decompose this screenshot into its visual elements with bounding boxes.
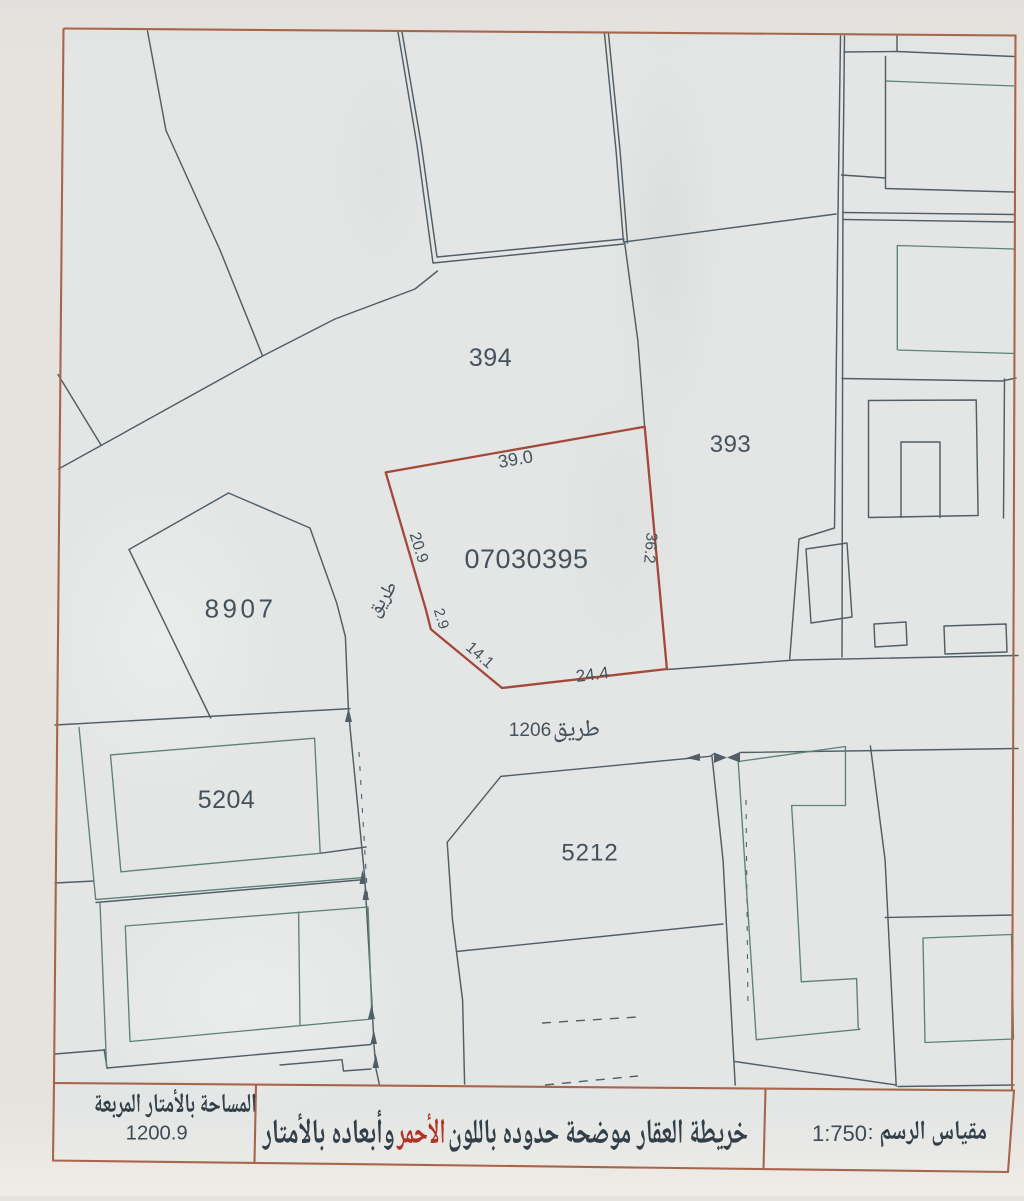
svg-text::: : <box>868 1122 874 1144</box>
svg-text:07030395: 07030395 <box>464 544 588 574</box>
svg-text:36.2: 36.2 <box>640 532 660 565</box>
svg-text:393: 393 <box>710 431 752 458</box>
svg-text:8907: 8907 <box>205 594 277 624</box>
svg-text:1206: 1206 <box>509 720 551 741</box>
svg-text:5212: 5212 <box>561 840 618 867</box>
svg-text:394: 394 <box>469 344 512 372</box>
svg-text:1200.9: 1200.9 <box>126 1123 188 1145</box>
svg-text:1:750: 1:750 <box>812 1121 867 1146</box>
svg-text:24.4: 24.4 <box>575 663 610 686</box>
svg-text:5204: 5204 <box>198 786 256 814</box>
